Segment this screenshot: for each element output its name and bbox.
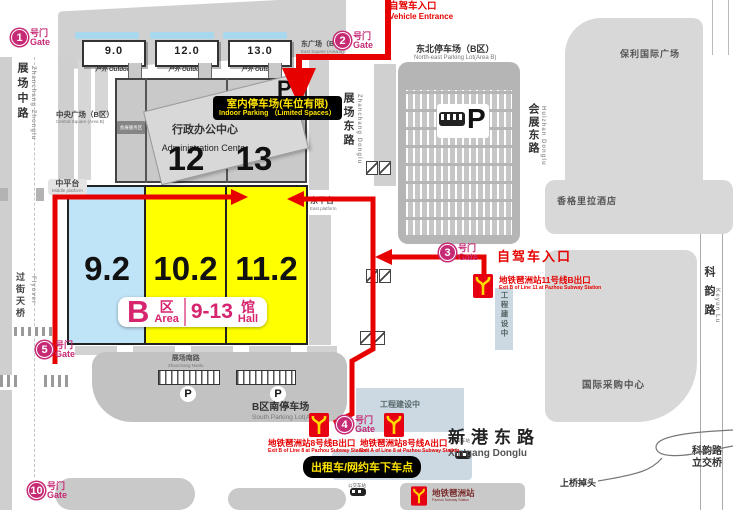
gate-3-badge: 3 号门Gate — [439, 244, 478, 262]
gate-en: Gate — [355, 425, 375, 434]
xingang-donglu-zh: 新港东路 — [448, 428, 540, 448]
metro-exit-zh: 地铁琶洲站8号线B出口 — [268, 439, 368, 448]
metro-exit-zh: 地铁琶洲站8号线A出口 — [360, 439, 459, 448]
badge-divider — [184, 298, 186, 326]
metro-line8-exitB-label: 地铁琶洲站8号线B出口 Exit B of Line 8 at Pazhou S… — [268, 439, 368, 454]
east-square-en: East Square (Area B) — [301, 49, 348, 54]
top-right-road-line — [712, 0, 713, 55]
outdoor-zh: 户外 — [168, 67, 180, 73]
escalator-icon — [366, 161, 391, 175]
mini-area-zh: 会展服务区 — [120, 125, 143, 130]
construction-label-vertical: 工程建设中 — [499, 291, 510, 339]
parking-p-circle: P — [270, 386, 286, 402]
gate-number: 4 — [336, 416, 353, 433]
outdoor-block-number: 13.0 — [247, 45, 272, 57]
metro-exit-zh: 地铁琶洲站11号线B出口 — [499, 276, 601, 285]
u-turn-label: 上桥掉头 — [560, 476, 596, 489]
middle-platform-label: 中平台 Middle platform — [48, 179, 87, 195]
gate-number: 1 — [11, 29, 28, 46]
xingang-donglu-en: Xin'gang Donglu — [448, 448, 540, 460]
zhanchang-donglu-label: 展场东路 — [340, 92, 356, 148]
gate-en: Gate — [55, 350, 75, 359]
metro-line8-exitA-label: 地铁琶洲站8号线A出口 Exit A of Line 8 at Pazhou S… — [360, 439, 459, 454]
middle-platform-en: Middle platform — [52, 189, 83, 194]
metro-line11-exit-label: 地铁琶洲站11号线B出口 Exit B of Line 11 at Pazhou… — [499, 276, 601, 291]
outdoor-block-13: 13.0 户外 Outdoor — [228, 40, 292, 67]
ne-parking-p: P — [467, 103, 486, 135]
hall-11-2-number: 11.2 — [227, 252, 306, 285]
outdoor-block-number: 9.0 — [105, 45, 123, 57]
road-island — [55, 478, 195, 510]
vehicle-entrance-zh: 自驾车入口 — [389, 1, 453, 12]
zhanchang-nanlu-en: Zhanchang Nanlu — [168, 363, 204, 368]
station-en: Pazhou Subway Station — [432, 498, 475, 502]
keyun-interchange-line2: 立交桥 — [692, 458, 722, 470]
hall-12-number: 12 — [162, 142, 210, 175]
gate-2-badge: 2 号门Gate — [334, 32, 373, 50]
poly-plaza-label: 保利国际广场 — [620, 47, 680, 60]
canopy-strip — [223, 32, 287, 39]
block-strip — [309, 60, 329, 190]
indoor-parking-label: 室内停车场(车位有限) Indoor Parking （Limited Spac… — [213, 96, 342, 120]
ne-parking-label: 东北停车场（B区） North-east Parking Lot(Area B) — [414, 44, 496, 63]
keyun-lu-en: Keyun Lu — [714, 288, 720, 323]
parking-stalls — [158, 370, 220, 385]
outdoor-zh: 户外 — [241, 67, 253, 73]
gate-5-badge: 5 号门Gate — [36, 341, 75, 359]
gate3-vehicle-entrance-label: 自驾车入口 — [497, 246, 572, 265]
flyover-en: Flyover — [30, 276, 36, 304]
metro-exit-en: Exit B of Line 8 at Pazhou Subway Statio… — [268, 448, 368, 454]
canopy-strip — [75, 32, 139, 39]
east-platform-label: 东平台 East platform — [310, 196, 337, 211]
bus-stop-label: 公交车站 — [348, 483, 366, 489]
metro-exit-en: Exit A of Line 8 at Pazhou Subway Statio… — [360, 448, 459, 454]
metro-exit-en: Exit B of Line 11 at Pazhou Subway Stati… — [499, 285, 601, 291]
indoor-parking-en: Indoor Parking （Limited Spaces） — [219, 110, 336, 118]
huizhan-donglu-en: Huizhan Donglu — [540, 106, 546, 166]
central-square-label: 中央广场（B区） Central Square (Area B) — [56, 110, 114, 124]
gate-en: Gate — [30, 38, 50, 47]
metro-icon — [411, 486, 427, 510]
zhanchang-nanlu-label: 展场南路 Zhanchang Nanlu — [168, 355, 204, 369]
central-square-en: Central Square (Area B) — [56, 119, 114, 124]
flyover-steps — [14, 327, 56, 336]
gate-en: Gate — [458, 253, 478, 262]
bus-stop-icon — [350, 488, 366, 496]
gate-4-badge: 4 号门Gate — [336, 416, 375, 434]
huizhan-donglu-label: 会展东路 — [525, 103, 541, 155]
parking-stalls — [236, 370, 296, 385]
zhanchang-zhonglu-label: 展场中路 — [14, 62, 30, 122]
shangri-la-label: 香格里拉酒店 — [557, 194, 617, 207]
building-divider — [145, 78, 147, 183]
parking-p-circle: P — [180, 386, 196, 402]
zhanchang-nanlu-zh: 展场南路 — [168, 355, 204, 363]
east-platform-zh: 东平台 — [310, 196, 337, 206]
hall-13-number: 13 — [230, 142, 278, 175]
xingang-donglu-label: 新港东路 Xin'gang Donglu — [448, 428, 540, 459]
escalator-icon — [360, 331, 385, 345]
construction-label: 工程建设中 — [380, 399, 420, 410]
shangri-la-block — [545, 180, 733, 234]
admin-zh: 行政办公中心 — [172, 124, 238, 136]
ne-parking-zh: 东北停车场（B区） — [414, 44, 496, 55]
building-connector — [128, 63, 142, 79]
area-b-badge: B 区 Area 9-13 馆 Hall — [118, 297, 267, 327]
crosswalk — [44, 375, 72, 387]
area-b-letter: B — [127, 298, 149, 326]
road-island — [228, 488, 346, 510]
pazhou-station-label: 地铁琶洲站 Pazhou Subway Station — [432, 488, 475, 502]
flyover-label: 过街天桥 — [14, 272, 27, 320]
vehicle-entrance-label: 自驾车入口 Vehicle Entrance — [389, 1, 453, 22]
keyun-interchange-line1: 科韵路 — [692, 446, 722, 458]
outdoor-zh: 户外 — [95, 67, 107, 73]
indoor-parking-zh: 室内停车场(车位有限) — [219, 98, 336, 110]
gate-en: Gate — [47, 491, 67, 500]
poly-plaza-block — [565, 18, 703, 190]
zhanchang-donglu-en: Zhanchang Donglu — [356, 94, 362, 164]
hall-10-2-number: 10.2 — [146, 252, 225, 285]
bus-icon — [439, 112, 465, 126]
canopy-strip — [150, 32, 214, 39]
left-edge-block-2 — [0, 390, 12, 510]
hall-9-2-number: 9.2 — [70, 252, 144, 285]
outdoor-block-number: 12.0 — [174, 45, 199, 57]
keyun-interchange-label: 科韵路 立交桥 — [692, 446, 722, 470]
east-platform-en: East platform — [310, 206, 337, 211]
mini-area-label: 会展服务区 — [117, 121, 145, 134]
gate-en: Gate — [353, 41, 373, 50]
top-right-road-line — [728, 0, 729, 55]
gate-1-badge: 1 号门Gate — [11, 29, 50, 47]
gate-number: 10 — [28, 482, 45, 499]
building-connector — [198, 63, 212, 79]
area-b-qu: 区 Area — [154, 300, 178, 325]
left-edge-block — [0, 57, 12, 375]
taxi-dropoff-label: 出租车/网约车下车点 — [303, 456, 421, 478]
station-zh: 地铁琶洲站 — [432, 488, 475, 498]
metro-icon — [473, 274, 493, 303]
sourcing-center-label: 国际采购中心 — [582, 377, 645, 391]
escalator-icon — [366, 269, 391, 283]
ne-parking-en: North-east Parking Lot(Area B) — [414, 55, 496, 63]
gate-number: 3 — [439, 244, 456, 261]
crosswalk — [0, 375, 20, 387]
central-square-zh: 中央广场（B区） — [56, 110, 114, 119]
zhanchang-zhonglu-en: Zhanchang Zhonglu — [30, 66, 36, 140]
hall-range: 9-13 — [191, 300, 233, 324]
block-strip — [309, 215, 331, 345]
keyun-road-line — [722, 228, 723, 510]
area-b-guan: 馆 Hall — [238, 300, 258, 325]
gate-10-badge: 10 号门Gate — [28, 482, 67, 500]
exhibition-center-map: P P P 9.0 户外 Outdoor 12.0 户外 Outdoor 13.… — [0, 0, 733, 510]
vehicle-entrance-en: Vehicle Entrance — [389, 12, 453, 22]
gate-number: 2 — [334, 32, 351, 49]
gate-number: 5 — [36, 341, 53, 358]
